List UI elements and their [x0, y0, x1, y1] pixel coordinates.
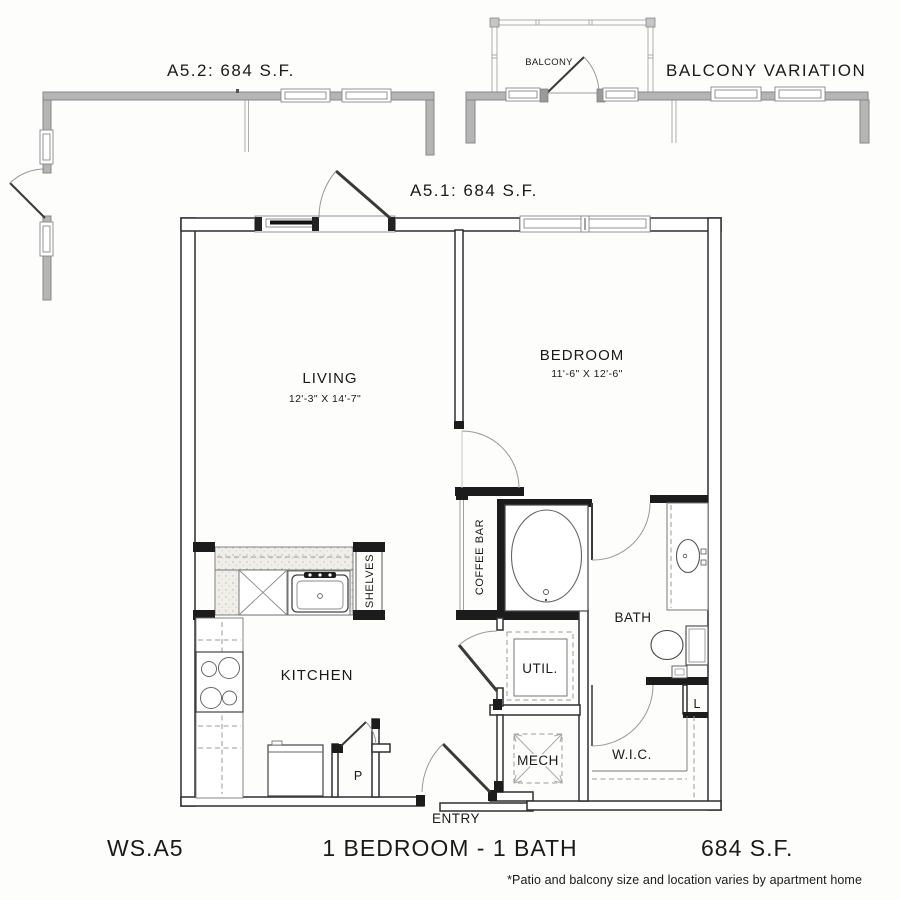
- patio-wall-left-mid: [43, 163, 51, 173]
- room-dims-bedroom: 11'-6" X 12'-6": [551, 368, 623, 380]
- balcony-wall-seg: [825, 92, 868, 100]
- wall-mech-west: [497, 715, 503, 792]
- window-jamb: [312, 217, 319, 231]
- window-jamb: [255, 217, 262, 231]
- balcony-window-4: [775, 87, 825, 101]
- room-label-linen: L: [694, 697, 701, 711]
- wall-divider-end-cap: [454, 421, 464, 429]
- room-label-entry: ENTRY: [432, 811, 480, 826]
- wall-util-west-stub: [497, 618, 503, 630]
- balcony-variation-drawing: BALCONY VARIATION BALCONY: [466, 18, 869, 143]
- patio-wall-right-return: [426, 100, 434, 155]
- wall-top-1: [181, 218, 255, 231]
- patio-window-top-2: [342, 89, 391, 102]
- plan-code: WS.A5: [107, 835, 184, 861]
- patio-wall-left-upper: [43, 100, 51, 132]
- footer: WS.A5 1 BEDROOM - 1 BATH 684 S.F. *Patio…: [107, 835, 862, 887]
- wall-bottom-step: [440, 803, 533, 811]
- room-dims-living: 12'-3" X 14'-7": [289, 393, 361, 405]
- room-label-kitchen: KITCHEN: [281, 667, 354, 684]
- shelves-cabinet: SHELVES: [353, 542, 385, 620]
- balcony-room-label: BALCONY: [525, 57, 573, 68]
- bath-door: [592, 503, 650, 560]
- stove: [196, 652, 243, 712]
- entry-door: [422, 744, 490, 792]
- balcony-variation-label: BALCONY VARIATION: [666, 61, 866, 80]
- refrigerator: [268, 741, 323, 796]
- window-jamb: [388, 217, 395, 231]
- wall-left: [181, 218, 195, 806]
- coffee-bar-label: COFFEE BAR: [474, 519, 486, 595]
- balcony-door-swing-arc: [584, 57, 599, 92]
- room-label-mech: MECH: [517, 753, 559, 768]
- patio-window-top-1: [281, 89, 330, 102]
- balcony-wall-right-return: [860, 100, 869, 143]
- patio-exit-door-swing-arc: [319, 171, 336, 218]
- wall-vanity-north: [650, 495, 708, 503]
- wall-coffeebar-tub: [497, 499, 505, 612]
- living-fixed-window: [270, 221, 315, 225]
- bathtub: [505, 505, 588, 611]
- shelves-label: SHELVES: [364, 554, 376, 608]
- room-label-wic: W.I.C.: [612, 747, 652, 762]
- patio-exit-door-leaf: [336, 171, 390, 218]
- patio-door-leaf: [10, 183, 45, 218]
- entry-jamb: [416, 795, 425, 806]
- kitchen-sink: [288, 571, 350, 615]
- patio-variation-drawing: A5.2: 684 S.F.: [10, 61, 434, 300]
- balcony-wall-left-return: [466, 100, 475, 143]
- room-label-bath: BATH: [614, 610, 651, 625]
- counter-jamb: [193, 542, 215, 552]
- patio-door-swing-arc: [10, 169, 45, 183]
- wall-living-bedroom-divider: [455, 230, 463, 422]
- patio-door: [10, 169, 45, 218]
- balcony-window-3: [711, 87, 761, 101]
- balcony-door-jamb: [540, 89, 548, 102]
- patio-wall-left-lower: [43, 255, 51, 300]
- wall-jamb: [493, 699, 502, 710]
- pantry-closet: [332, 719, 390, 797]
- room-label-pantry: P: [354, 769, 362, 783]
- patio-window-left-1: [40, 130, 53, 164]
- room-label-living: LIVING: [302, 370, 357, 387]
- patio-wall-tick: [236, 89, 239, 93]
- living-patio-opening: [255, 171, 395, 232]
- dishwasher: [239, 570, 287, 615]
- wall-top-2: [395, 218, 520, 231]
- patio-variation-label: A5.2: 684 S.F.: [167, 61, 295, 80]
- toilet: [651, 626, 708, 678]
- pantry-door-leaf: [341, 722, 366, 746]
- wall-linen-west: [683, 685, 687, 714]
- floor-plan-canvas: A5.2: 684 S.F. BALCONY VARIATION: [0, 0, 900, 900]
- util-door: [459, 631, 497, 691]
- balcony-wall-seg: [466, 92, 508, 100]
- plan-title: 1 BEDROOM - 1 BATH: [322, 835, 577, 861]
- bedroom-door: [462, 431, 519, 488]
- main-plan-label: A5.1: 684 S.F.: [410, 181, 538, 200]
- balcony-railing: [490, 18, 655, 93]
- bedroom-window: [520, 216, 650, 232]
- plan-disclaimer: *Patio and balcony size and location var…: [507, 873, 862, 887]
- balcony-wall-seg: [638, 92, 711, 100]
- balcony-window-2: [603, 88, 638, 101]
- plan-area: 684 S.F.: [701, 835, 793, 861]
- wall-right: [708, 218, 721, 810]
- balcony-window-1: [506, 88, 540, 101]
- coffee-bar: COFFEE BAR: [456, 489, 486, 610]
- vanity-sink: [667, 503, 708, 610]
- wall-bottom-3: [527, 801, 721, 810]
- room-label-bedroom: BEDROOM: [540, 347, 625, 364]
- room-label-util: UTIL.: [522, 661, 558, 676]
- patio-window-left-2: [40, 222, 53, 256]
- wic-door: [592, 685, 653, 746]
